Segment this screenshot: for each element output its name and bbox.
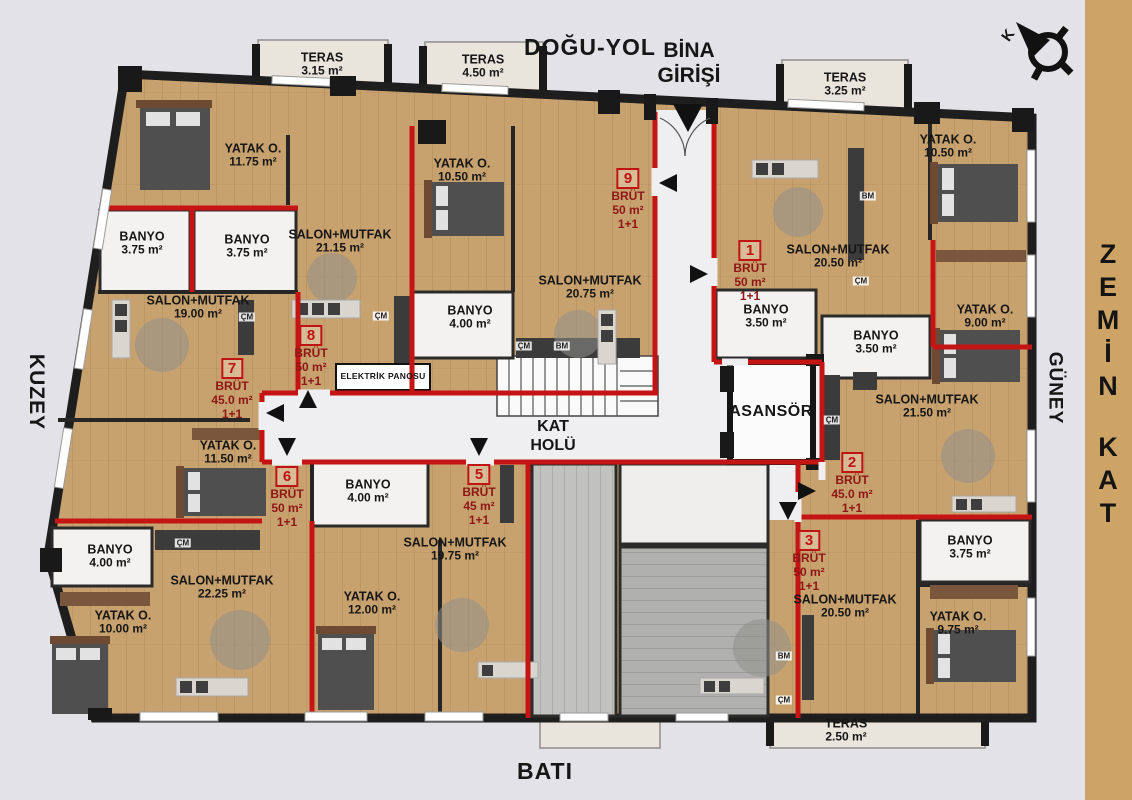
floor-title-letter: A — [1098, 464, 1118, 497]
floor-title-letter: Z — [1100, 238, 1117, 271]
floor-title-letter: K — [1098, 431, 1118, 464]
staircase — [497, 356, 658, 416]
floor-title: ZEMİNKAT — [1092, 238, 1124, 530]
compass-icon — [1016, 22, 1071, 79]
electric-panel-box — [336, 364, 430, 390]
floor-plan-drawing — [0, 0, 1132, 800]
floor-title-letter: İ — [1104, 337, 1112, 370]
floor-title-letter: E — [1099, 271, 1117, 304]
floor-title-letter: N — [1098, 370, 1118, 403]
floor-title-letter: M — [1097, 304, 1120, 337]
floor-title-letter: T — [1100, 497, 1117, 530]
elevator-shaft — [720, 354, 824, 470]
floor-plan-page: ZEMİNKAT DOĞU-YOL BİNA GİRİŞİ BATI KUZEY… — [0, 0, 1132, 800]
